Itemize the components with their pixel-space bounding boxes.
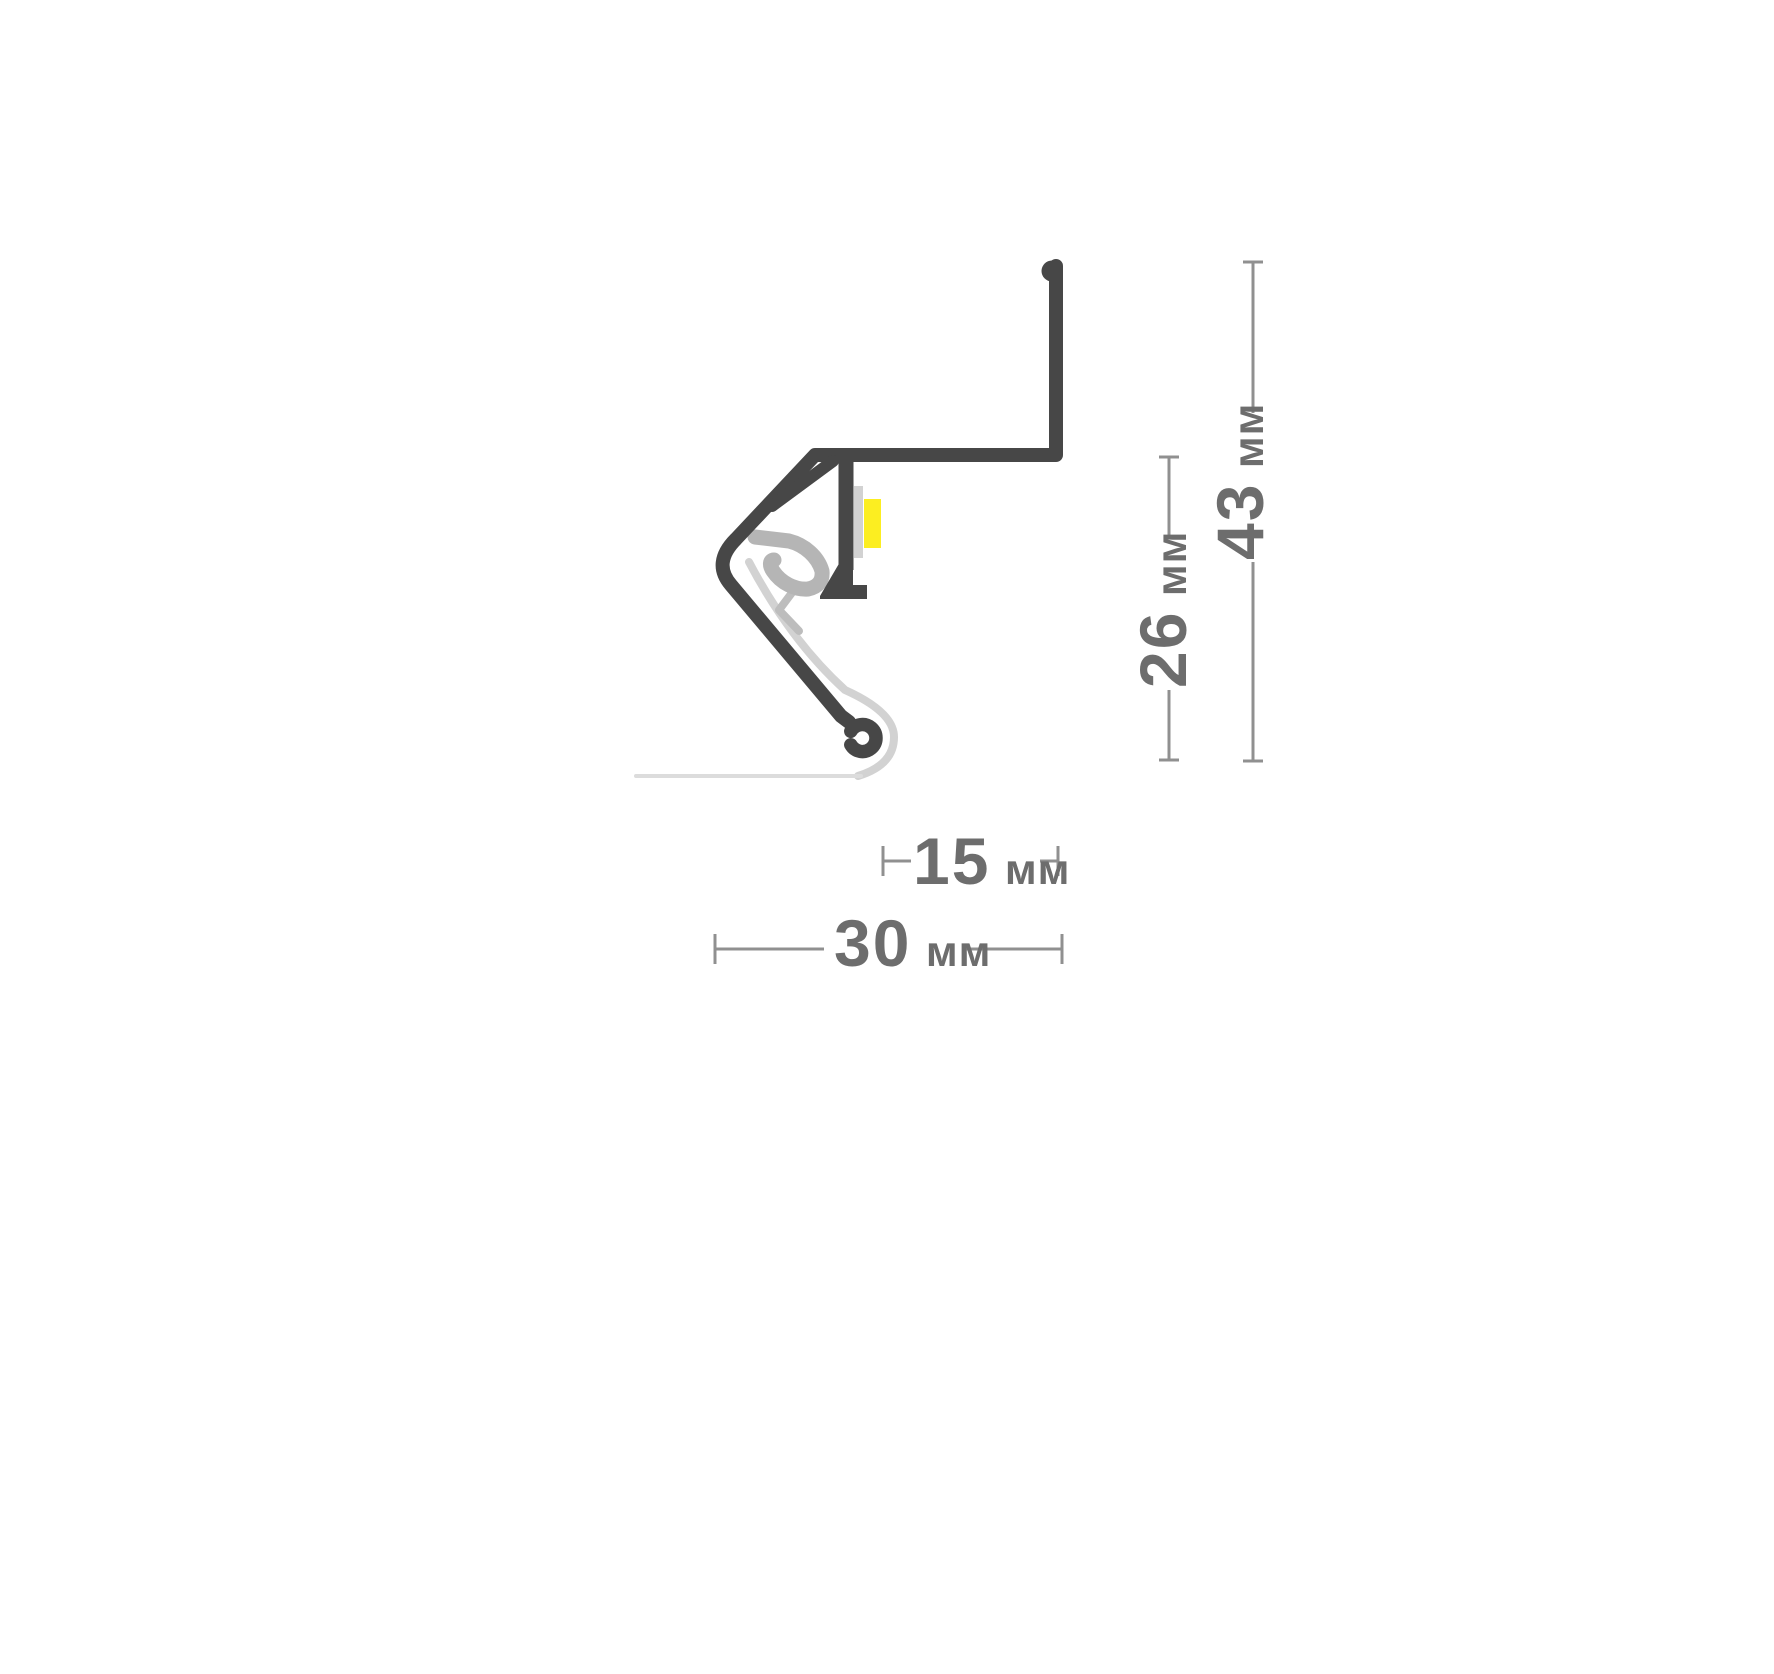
led-pcb	[854, 486, 863, 558]
mounting-clip	[755, 537, 822, 589]
dim-label-inner-height: 26 мм	[1126, 531, 1200, 689]
profile-main-body	[723, 266, 1056, 722]
led-strip	[864, 499, 881, 548]
dim-label-inner-width: 15 мм	[913, 824, 1071, 898]
dim-label-overall-width: 30 мм	[834, 906, 992, 980]
profile-diagram: 15 мм 30 мм 26 мм 43 мм	[0, 0, 1774, 1674]
diagram-canvas: 15 мм 30 мм 26 мм 43 мм	[0, 0, 1774, 1674]
dim-label-overall-height: 43 мм	[1203, 403, 1277, 561]
clip-tail	[779, 590, 799, 631]
profile-bottom-hook	[851, 725, 876, 752]
